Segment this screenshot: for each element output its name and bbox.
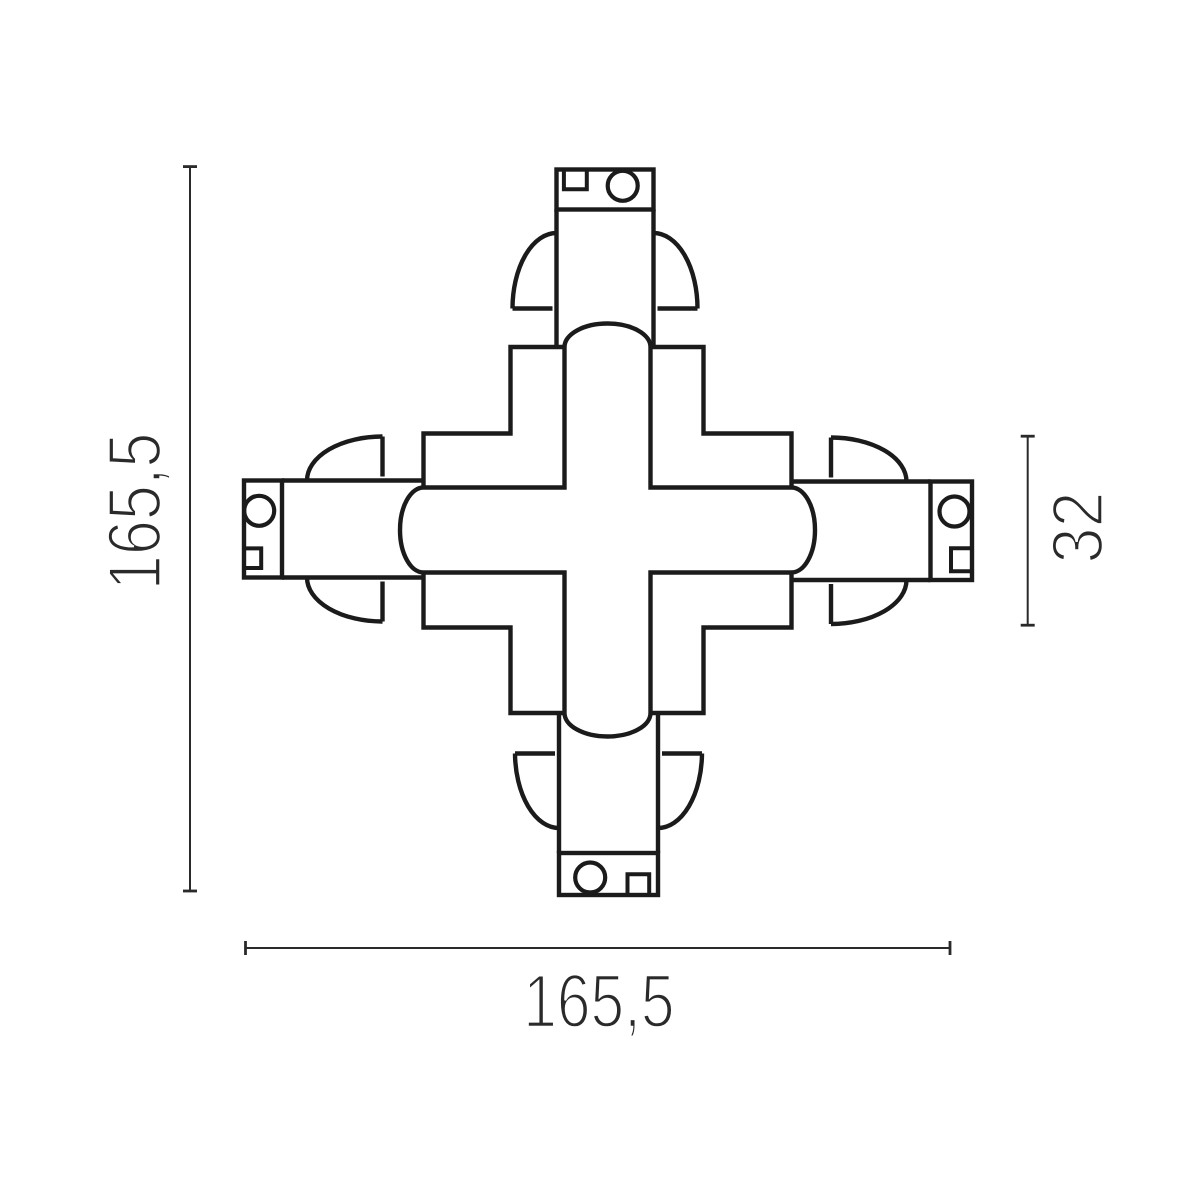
svg-text:165,5: 165,5 — [523, 959, 674, 1044]
svg-text:165,5: 165,5 — [92, 433, 176, 591]
svg-text:32: 32 — [1037, 492, 1118, 564]
